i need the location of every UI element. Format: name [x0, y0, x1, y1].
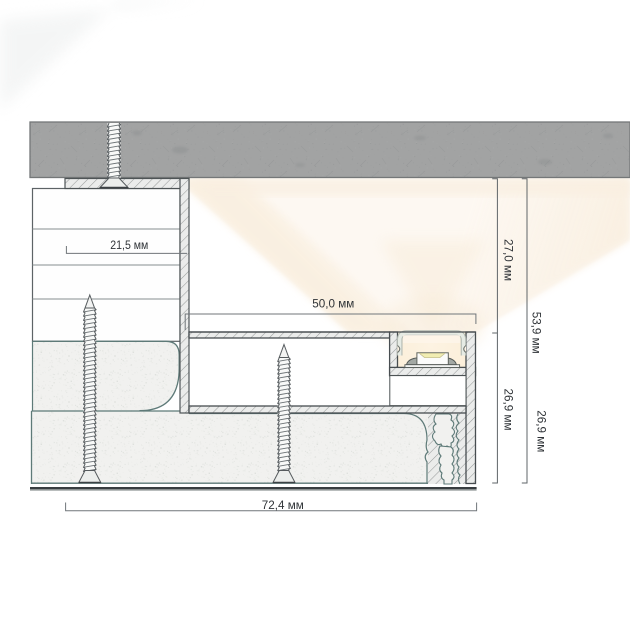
svg-text:53,9 мм: 53,9 мм: [530, 312, 544, 354]
svg-text:26,9 мм: 26,9 мм: [501, 389, 515, 431]
svg-text:72,4 мм: 72,4 мм: [262, 498, 304, 512]
svg-text:50,0 мм: 50,0 мм: [312, 296, 354, 310]
svg-text:21,5 мм: 21,5 мм: [110, 238, 148, 252]
svg-text:26,9 мм: 26,9 мм: [535, 410, 549, 452]
svg-text:27,0 мм: 27,0 мм: [502, 239, 516, 281]
